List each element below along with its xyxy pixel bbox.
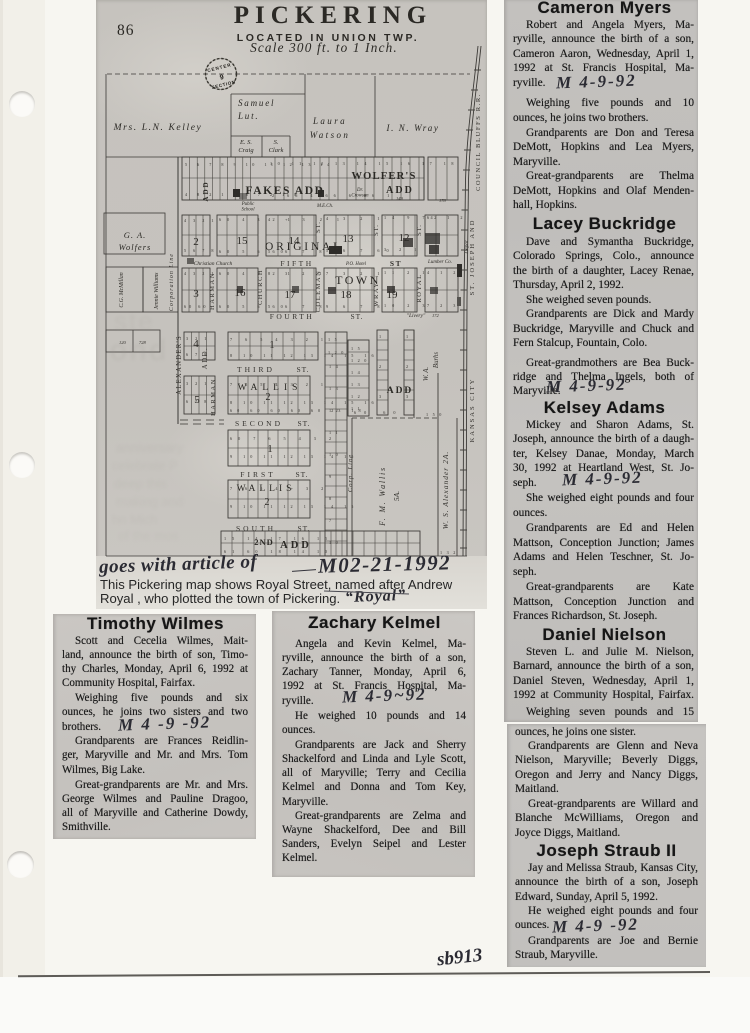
svg-text:Jennie Williams: Jennie Williams	[154, 272, 160, 310]
svg-text:7 6 5 4 3 2 1: 7 6 5 4 3 2 1	[230, 382, 329, 387]
svg-text:11 2 1: 11 2 1	[384, 270, 430, 275]
svg-text:7: 7	[329, 518, 336, 523]
svg-text:W. S. Alexander 2A.: W. S. Alexander 2A.	[441, 451, 450, 530]
svg-text:150: 150	[426, 412, 446, 417]
svg-text:hn Mich: hn Mich	[112, 512, 158, 527]
svg-text:SOUTH: SOUTH	[236, 524, 276, 533]
svg-text:8 10 11 12 13 14 15 16: 8 10 11 12 13 14 15 16	[230, 400, 379, 405]
svg-text:10 11 12 13 14 15 16 17 18: 10 11 12 13 14 15 16 17 18	[270, 161, 459, 166]
svg-text:60 7 6 5 4 3 2: 60 7 6 5 4 3 2	[230, 436, 337, 441]
svg-text:ALEXANDER'S: ALEXANDER'S	[176, 335, 183, 395]
svg-text:FOURTH: FOURTH	[270, 312, 315, 321]
svg-text:62 1 2: 62 1 2	[427, 215, 467, 220]
svg-text:10: 10	[329, 540, 342, 545]
svg-text:2: 2	[193, 236, 199, 248]
svg-text:12: 12	[399, 232, 410, 244]
svg-text:Lut.: Lut.	[237, 111, 259, 121]
svg-text:10 2 3: 10 2 3	[384, 303, 430, 308]
svg-text:15: 15	[237, 235, 249, 247]
svg-text:ST.: ST.	[315, 221, 322, 233]
svg-text:COUNCIL BLUFFS R.R.: COUNCIL BLUFFS R.R.	[475, 93, 482, 191]
svg-text:3 2 1: 3 2 1	[384, 247, 422, 252]
svg-text:Lumber Co.: Lumber Co.	[427, 260, 452, 265]
svg-text:ADD: ADD	[202, 180, 210, 201]
svg-text:4 1 2: 4 1 2	[427, 270, 460, 275]
svg-text:13: 13	[351, 382, 364, 387]
svg-text:7 6 5 4 3 2 1: 7 6 5 4 3 2 1	[230, 337, 329, 342]
svg-text:15 14 17 16 15: 15 14 17 16 15	[224, 536, 333, 541]
svg-text:1: 1	[406, 334, 413, 339]
svg-text:9 10 11 12 13 14 15: 9 10 11 12 13 14 15	[230, 504, 358, 509]
svg-text:Corp. Line: Corp. Line	[347, 454, 354, 492]
svg-text:HARMAN: HARMAN	[210, 378, 217, 416]
svg-text:18: 18	[341, 289, 353, 301]
svg-text:60 60 60 60 60 23 18: 60 60 60 60 60 23 18	[230, 408, 366, 413]
svg-text:Laura: Laura	[312, 116, 347, 126]
svg-text:14: 14	[289, 235, 301, 247]
svg-text:7 3 2 1: 7 3 2 1	[326, 271, 387, 276]
svg-text:WOLFER'S: WOLFER'S	[351, 171, 416, 182]
svg-text:ST.: ST.	[296, 365, 309, 374]
svg-text:Clark: Clark	[269, 147, 284, 154]
svg-text:School: School	[241, 208, 255, 213]
svg-text:I. N. Wray: I. N. Wray	[386, 123, 440, 133]
svg-text:2: 2	[406, 364, 413, 369]
svg-text:ST: ST	[390, 259, 402, 268]
svg-text:86: 86	[117, 22, 135, 39]
svg-text:anniversary: anniversary	[116, 440, 184, 455]
svg-text:ste: ste	[114, 306, 155, 336]
svg-text:ST. JOSEPH AND: ST. JOSEPH AND	[469, 219, 476, 296]
svg-text:ST.: ST.	[350, 312, 363, 321]
svg-text:17: 17	[285, 289, 297, 301]
svg-text:15: 15	[351, 346, 364, 351]
svg-text:9: 9	[219, 74, 225, 82]
svg-text:HARMAN: HARMAN	[209, 272, 216, 310]
svg-text:14: 14	[329, 364, 342, 369]
svg-text:149: 149	[396, 196, 404, 201]
svg-text:SECOND: SECOND	[235, 419, 283, 428]
svg-text:Public: Public	[241, 202, 255, 207]
svg-text:19: 19	[387, 289, 399, 301]
svg-text:ond: ond	[110, 334, 169, 367]
svg-text:9 6 7 8: 9 6 7 8	[326, 304, 387, 309]
svg-text:P.O. Hotel: P.O. Hotel	[345, 262, 367, 267]
svg-text:Watson: Watson	[310, 130, 351, 140]
svg-text:Mrs. L.N. Kelley: Mrs. L.N. Kelley	[113, 123, 203, 133]
svg-text:Samuel: Samuel	[238, 98, 275, 108]
svg-text:Scale 300 ft. to 1 Inch.: Scale 300 ft. to 1 Inch.	[250, 40, 398, 55]
svg-text:Wolfers: Wolfers	[119, 242, 152, 252]
svg-text:Christian Church: Christian Church	[194, 261, 233, 267]
svg-text:60 60: 60 60	[354, 410, 403, 415]
svg-text:W. A.: W. A.	[423, 367, 430, 381]
svg-text:178: 178	[439, 198, 447, 203]
svg-text:M.E.Ch.: M.E.Ch.	[316, 204, 333, 209]
svg-text:THIRD: THIRD	[237, 365, 275, 374]
svg-text:2: 2	[379, 364, 386, 369]
svg-text:FIFTH: FIFTH	[280, 259, 313, 268]
svg-text:E. S.: E. S.	[239, 139, 252, 146]
svg-text:4 3 2 1: 4 3 2 1	[184, 218, 217, 223]
svg-text:CENTER: CENTER	[207, 62, 232, 73]
svg-text:3 2 1: 3 2 1	[186, 336, 209, 341]
svg-text:ADD.: ADD.	[202, 347, 209, 369]
svg-text:ST.: ST.	[297, 524, 310, 533]
svg-text:6 7 8: 6 7 8	[186, 399, 209, 404]
svg-text:3 2 1: 3 2 1	[186, 381, 209, 386]
svg-text:ST.: ST.	[373, 224, 380, 236]
svg-text:S.: S.	[274, 139, 279, 146]
svg-text:3: 3	[193, 288, 199, 300]
svg-text:Craig: Craig	[238, 147, 254, 154]
svg-text:ST.: ST.	[297, 419, 310, 428]
svg-text:celebrate P: celebrate P	[112, 458, 178, 473]
svg-text:172: 172	[432, 313, 440, 318]
svg-text:2 66 4 66 6 66 1: 2 66 4 66 6 66 1	[272, 193, 395, 198]
svg-text:6 7 8: 6 7 8	[186, 352, 209, 357]
svg-text:15: 15	[328, 337, 341, 342]
svg-text:1: 1	[379, 334, 386, 339]
svg-text:making and: making and	[116, 494, 183, 509]
svg-text:Corporation Line: Corporation Line	[169, 253, 175, 311]
svg-text:16: 16	[235, 287, 247, 299]
svg-text:F. M. Wallis: F. M. Wallis	[378, 466, 387, 527]
svg-text:G. A.: G. A.	[124, 230, 147, 240]
svg-text:ST.: ST.	[416, 224, 423, 236]
svg-text:120: 120	[351, 358, 371, 363]
svg-text:5 6 7 8: 5 6 7 8	[268, 304, 329, 309]
svg-text:5 6 7 8: 5 6 7 8	[268, 249, 329, 254]
svg-text:8 3 2 1: 8 3 2 1	[268, 271, 329, 276]
svg-text:5 6 7 8: 5 6 7 8	[184, 248, 217, 253]
svg-text:7 2 3: 7 2 3	[427, 303, 460, 308]
svg-text:KANSAS CITY: KANSAS CITY	[469, 378, 476, 443]
svg-text:7 6 5 4 + 3 2: 7 6 5 4 + 3 2	[230, 486, 329, 491]
svg-text:14: 14	[351, 370, 364, 375]
svg-text:12: 12	[351, 394, 364, 399]
svg-text:Burhs: Burhs	[433, 352, 440, 368]
svg-text:10: 10	[329, 452, 342, 457]
svg-text:60 60: 60 60	[184, 304, 208, 309]
svg-text:4 3 2 1: 4 3 2 1	[326, 216, 387, 221]
svg-text:120: 120	[328, 350, 348, 355]
svg-text:5A.: 5A.	[392, 491, 401, 501]
svg-text:ROYAL: ROYAL	[416, 273, 423, 302]
svg-text:13: 13	[329, 386, 342, 391]
svg-text:3: 3	[379, 394, 386, 399]
svg-text:11: 11	[329, 430, 342, 435]
svg-text:12: 12	[329, 408, 342, 413]
svg-text:8: 8	[329, 496, 336, 501]
svg-text:PICKERING: PICKERING	[234, 2, 432, 29]
svg-text:4 3 2 1: 4 3 2 1	[184, 271, 217, 276]
svg-text:deep this: deep this	[114, 476, 167, 491]
svg-text:ST.: ST.	[295, 470, 308, 479]
svg-text:"Livery": "Livery"	[407, 313, 426, 319]
svg-text:C.G. McMillan: C.G. McMillan	[119, 272, 125, 307]
svg-text:of the mos: of the mos	[118, 528, 179, 543]
svg-text:FIRST: FIRST	[240, 470, 275, 479]
svg-text:13: 13	[343, 233, 355, 245]
svg-text:9: 9	[329, 474, 336, 479]
svg-text:WRAY: WRAY	[373, 281, 380, 306]
svg-text:3: 3	[406, 394, 413, 399]
